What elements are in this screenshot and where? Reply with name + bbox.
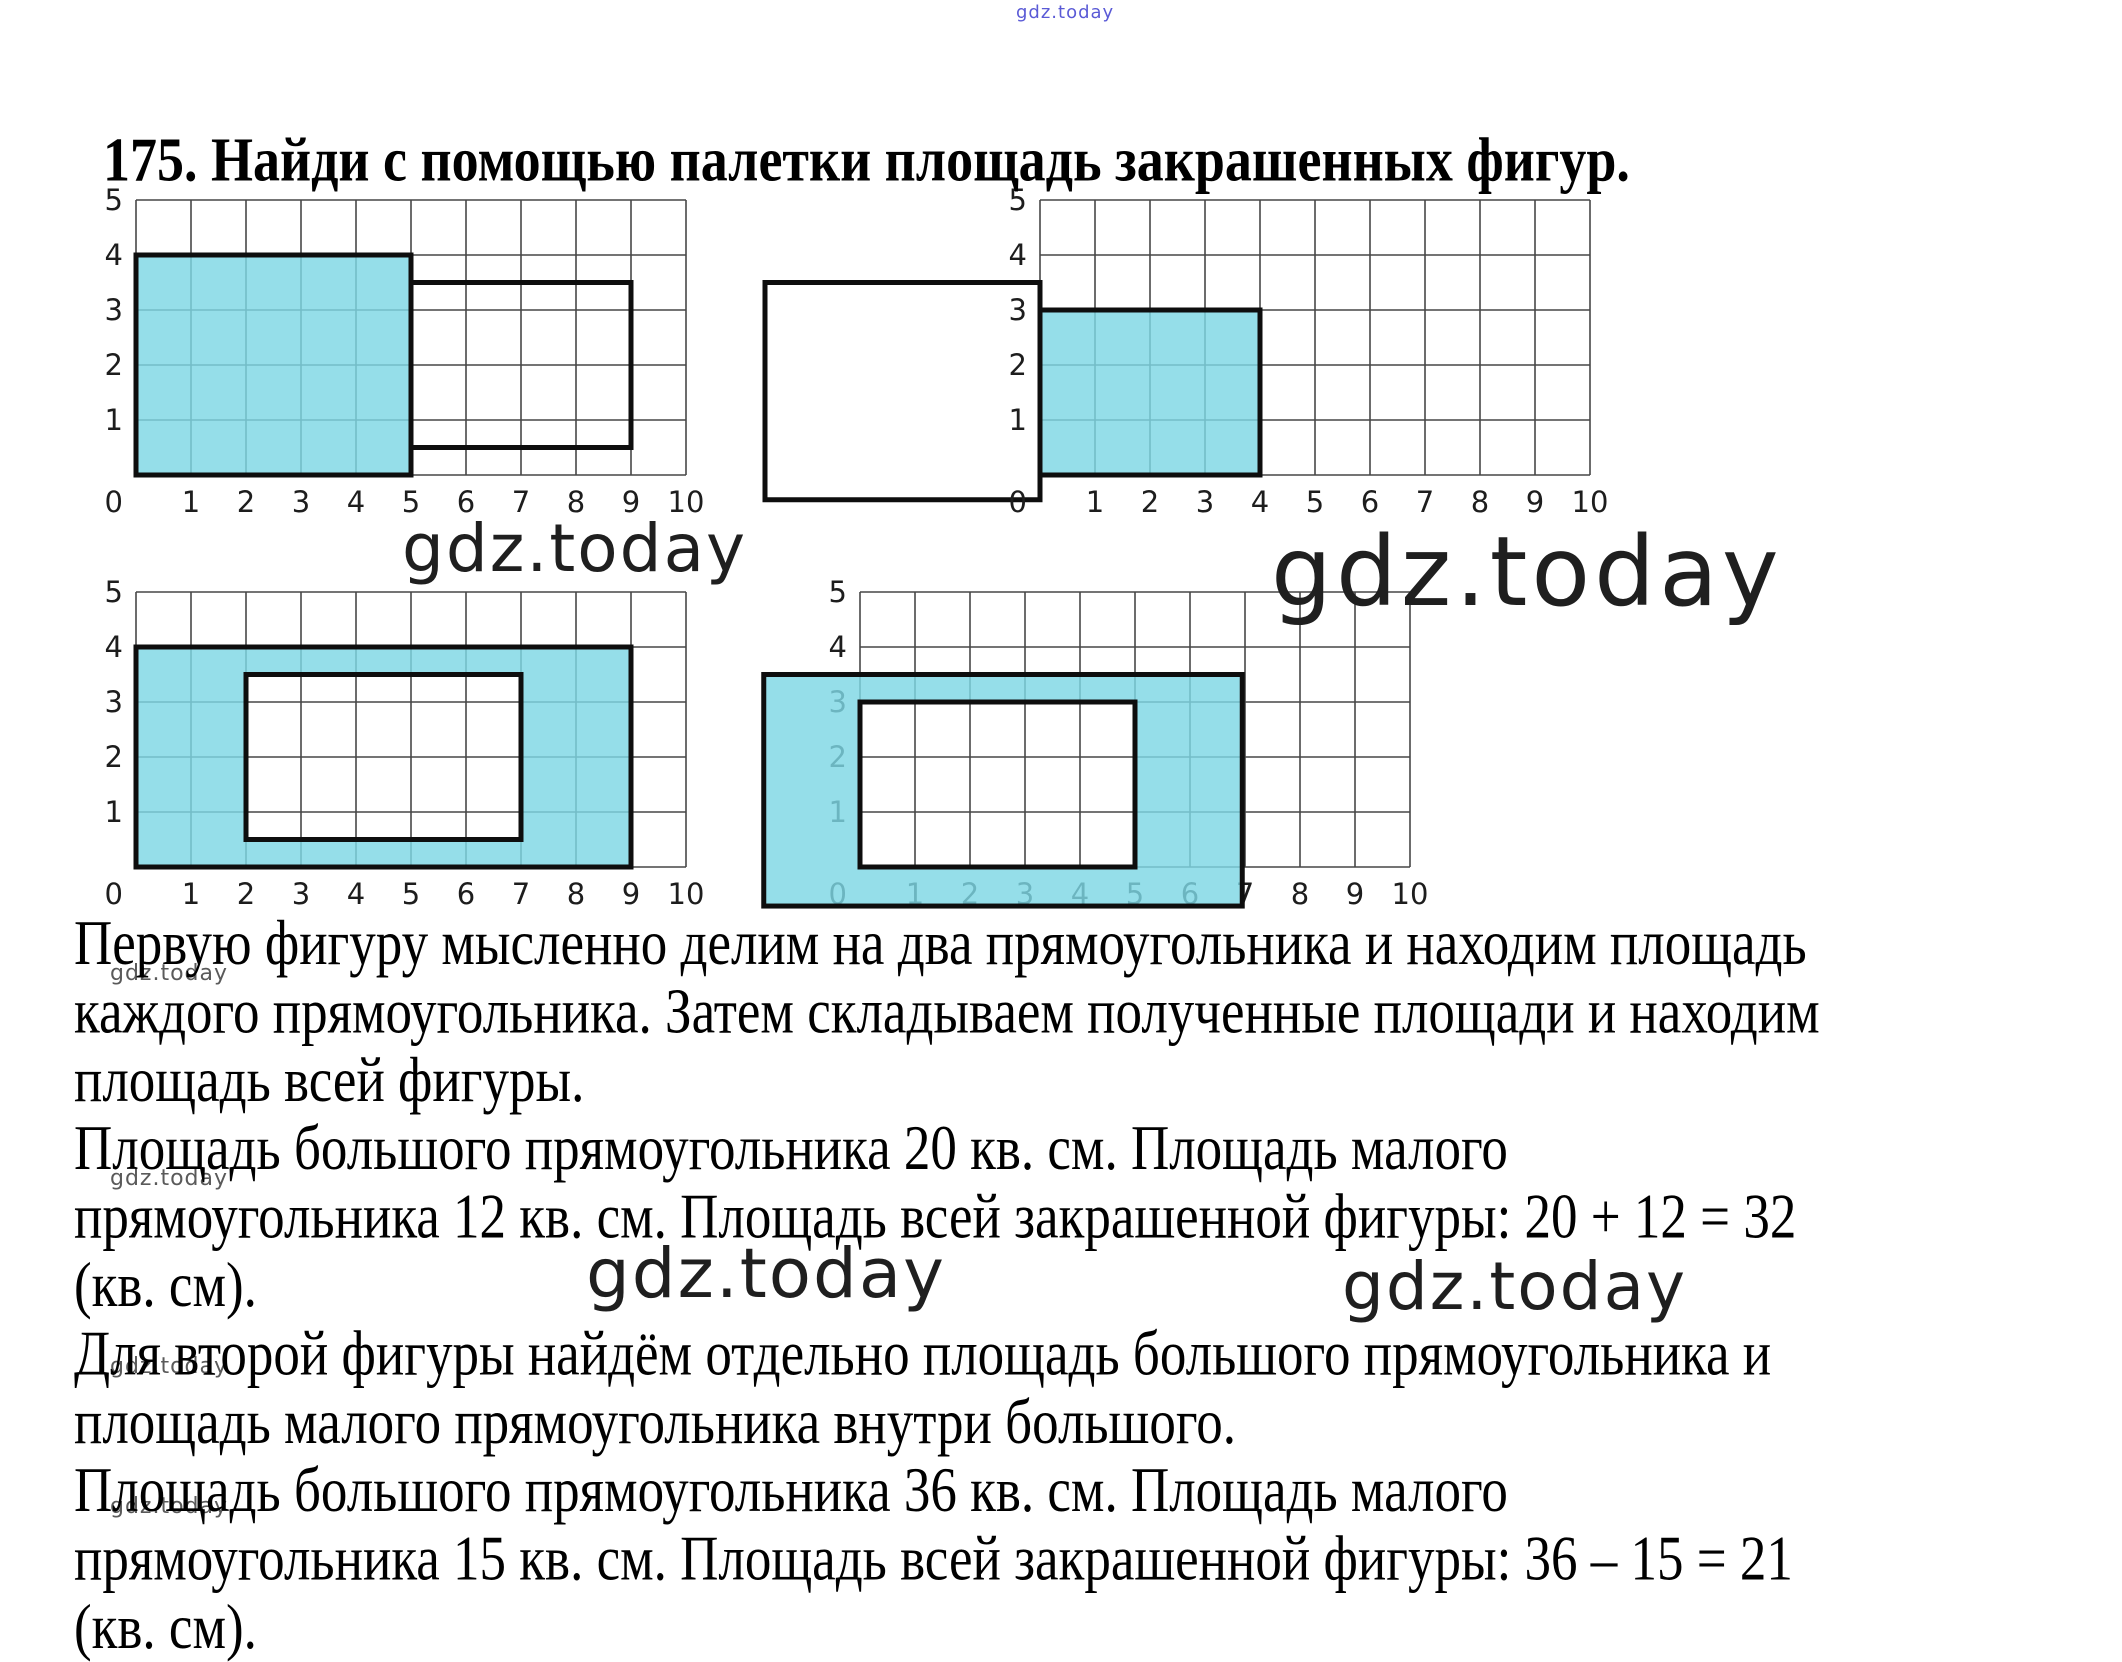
axis-label-y: 4 bbox=[1009, 238, 1027, 272]
axis-label-x: 6 bbox=[457, 877, 475, 911]
axis-label-origin: 0 bbox=[1009, 485, 1027, 519]
axis-label-y: 2 bbox=[105, 740, 123, 774]
shaded-figure bbox=[1040, 310, 1260, 475]
axis-label-y: 5 bbox=[105, 575, 123, 609]
axis-label-x: 8 bbox=[567, 877, 585, 911]
shaded-area bbox=[1040, 310, 1260, 475]
axis-label-x: 9 bbox=[622, 877, 640, 911]
solution-line: Площадь большого прямоугольника 20 кв. с… bbox=[74, 1115, 1820, 1183]
axis-label-y: 1 bbox=[105, 403, 123, 437]
axis-label-x: 8 bbox=[1291, 877, 1309, 911]
axis-label-x: 4 bbox=[1251, 485, 1269, 519]
axis-label-origin: 0 bbox=[105, 485, 123, 519]
solution-line: площадь малого прямоугольника внутри бол… bbox=[74, 1389, 1820, 1457]
axis-label-x: 6 bbox=[1361, 485, 1379, 519]
shaded-figure bbox=[764, 675, 1243, 907]
solution-line: (кв. см). bbox=[74, 1252, 1820, 1320]
solution-line: площадь всей фигуры. bbox=[74, 1047, 1820, 1115]
axis-label-origin: 0 bbox=[105, 877, 123, 911]
axis-label-x: 3 bbox=[292, 485, 310, 519]
watermark-top: gdz.today bbox=[1016, 4, 1114, 22]
offgrid-rectangle bbox=[765, 283, 1040, 500]
axis-label-y: 1 bbox=[105, 795, 123, 829]
axis-label-x: 10 bbox=[1572, 485, 1609, 519]
axis-label-y: 4 bbox=[105, 630, 123, 664]
watermark-large-2: gdz.today bbox=[1271, 524, 1783, 620]
axis-label-y: 3 bbox=[105, 293, 123, 327]
diagram-d2: 54321012345678910 bbox=[765, 183, 1608, 519]
axis-label-y: 4 bbox=[105, 238, 123, 272]
axis-label-y: 3 bbox=[105, 685, 123, 719]
solution-line: прямоугольника 12 кв. см. Площадь всей з… bbox=[74, 1184, 1820, 1252]
axis-label-x: 1 bbox=[1086, 485, 1104, 519]
solution-line: Площадь большого прямоугольника 36 кв. с… bbox=[74, 1457, 1820, 1525]
axis-label-y: 2 bbox=[1009, 348, 1027, 382]
axis-label-x: 2 bbox=[1141, 485, 1159, 519]
axis-label-x: 1 bbox=[182, 485, 200, 519]
solution-line: каждого прямоугольника. Затем складываем… bbox=[74, 978, 1820, 1046]
solution-line: Для второй фигуры найдём отдельно площад… bbox=[74, 1320, 1820, 1388]
axis-label-x: 4 bbox=[347, 877, 365, 911]
problem-title: 175. Найди с помощью палетки площадь зак… bbox=[103, 124, 1630, 195]
solution-line: прямоугольника 15 кв. см. Площадь всей з… bbox=[74, 1526, 1820, 1594]
axis-label-x: 9 bbox=[1346, 877, 1364, 911]
axis-label-y: 4 bbox=[829, 630, 847, 664]
axis-label-x: 2 bbox=[237, 877, 255, 911]
diagram-d1: 54321012345678910 bbox=[105, 183, 705, 519]
axis-label-x: 3 bbox=[292, 877, 310, 911]
axis-label-y: 1 bbox=[1009, 403, 1027, 437]
page: { "title": "175. Найди с помощью палетки… bbox=[0, 0, 2122, 1641]
axis-label-x: 10 bbox=[668, 877, 705, 911]
white-rectangle bbox=[765, 283, 1040, 500]
axis-label-x: 10 bbox=[1392, 877, 1429, 911]
axis-label-x: 7 bbox=[512, 877, 530, 911]
axis-label-y: 2 bbox=[105, 348, 123, 382]
axis-label-x: 8 bbox=[1471, 485, 1489, 519]
solution-line: (кв. см). bbox=[74, 1594, 1820, 1662]
watermark-large-1: gdz.today bbox=[402, 516, 747, 582]
axis-label-x: 1 bbox=[182, 877, 200, 911]
shaded-frame bbox=[764, 675, 1243, 907]
figure-outline bbox=[860, 702, 1135, 867]
axis-label-x: 3 bbox=[1196, 485, 1214, 519]
axis-label-x: 7 bbox=[1416, 485, 1434, 519]
solution-line: Первую фигуру мысленно делим на два прям… bbox=[74, 910, 1820, 978]
axis-label-x: 5 bbox=[402, 877, 420, 911]
axis-label-x: 4 bbox=[347, 485, 365, 519]
axis-label-y: 3 bbox=[1009, 293, 1027, 327]
axis-label-x: 9 bbox=[1526, 485, 1544, 519]
axis-label-x: 5 bbox=[1306, 485, 1324, 519]
shaded-area bbox=[136, 255, 411, 475]
axis-label-y: 5 bbox=[829, 575, 847, 609]
solution-text: Первую фигуру мысленно делим на два прям… bbox=[74, 910, 1820, 1662]
diagram-d3: 54321012345678910 bbox=[105, 575, 705, 911]
axis-label-x: 2 bbox=[237, 485, 255, 519]
